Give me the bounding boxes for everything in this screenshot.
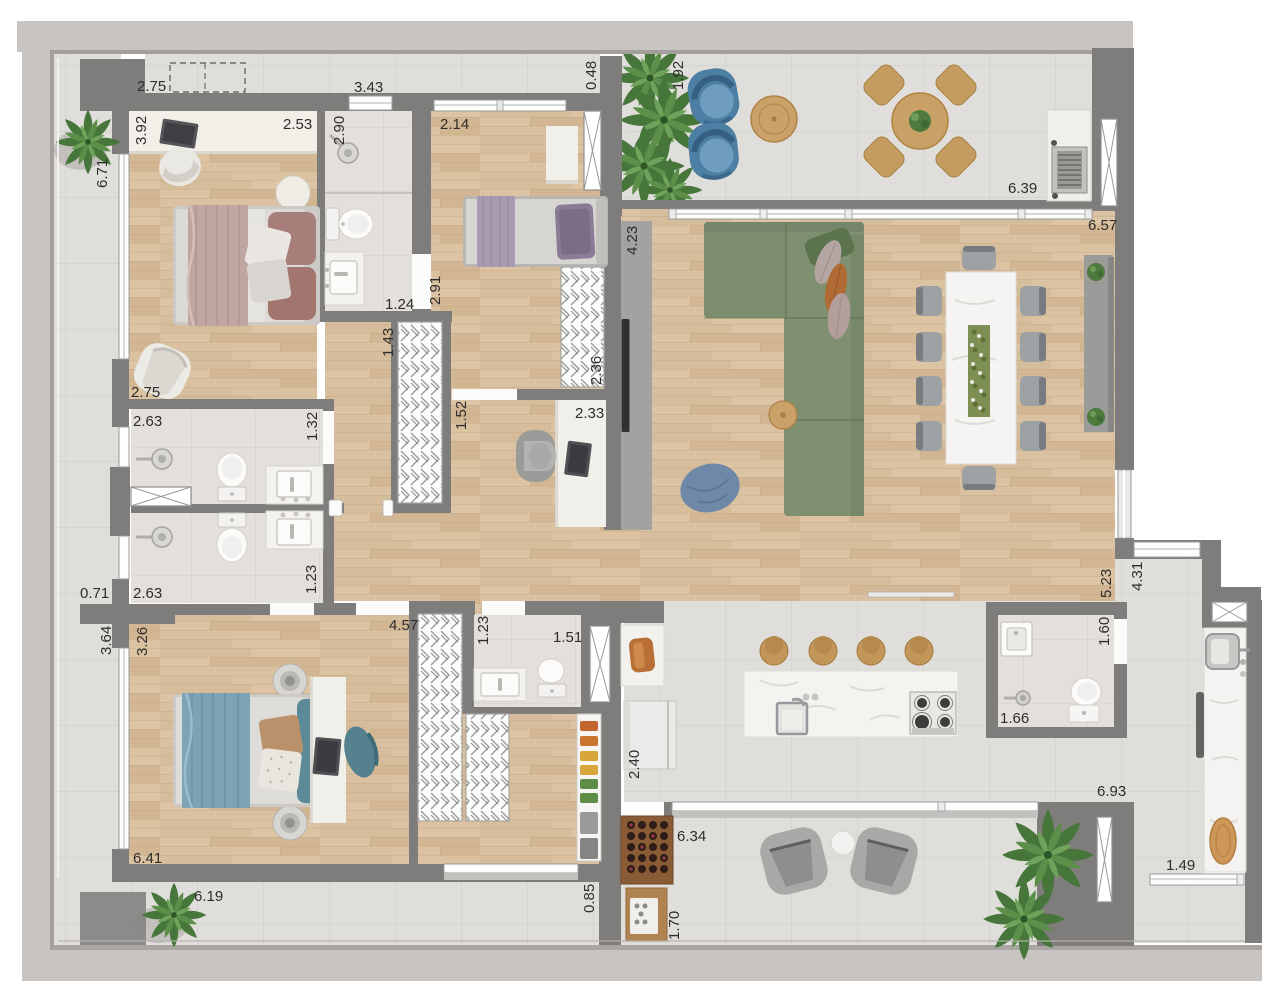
svg-text:6.71: 6.71	[94, 159, 111, 188]
svg-text:3.26: 3.26	[134, 627, 151, 656]
svg-text:2.90: 2.90	[331, 116, 348, 145]
svg-text:2.36: 2.36	[588, 356, 605, 385]
svg-text:2.14: 2.14	[440, 116, 469, 133]
svg-text:1.23: 1.23	[303, 565, 320, 594]
svg-text:1.23: 1.23	[475, 616, 492, 645]
svg-text:2.53: 2.53	[283, 116, 312, 133]
svg-text:2.75: 2.75	[131, 384, 160, 401]
svg-text:4.57: 4.57	[389, 617, 418, 634]
svg-text:1.32: 1.32	[304, 412, 321, 441]
svg-text:4.31: 4.31	[1129, 562, 1146, 591]
svg-text:1.70: 1.70	[666, 911, 683, 940]
svg-text:1.92: 1.92	[670, 61, 687, 90]
svg-text:0.48: 0.48	[583, 61, 600, 90]
svg-text:1.49: 1.49	[1166, 857, 1195, 874]
svg-text:4.23: 4.23	[624, 226, 641, 255]
svg-text:1.43: 1.43	[380, 328, 397, 357]
svg-text:2.40: 2.40	[626, 750, 643, 779]
svg-text:6.34: 6.34	[677, 828, 706, 845]
svg-text:0.85: 0.85	[581, 884, 598, 913]
svg-text:0.71: 0.71	[80, 585, 109, 602]
svg-text:1.66: 1.66	[1000, 710, 1029, 727]
svg-text:3.43: 3.43	[354, 79, 383, 96]
svg-text:1.52: 1.52	[453, 401, 470, 430]
svg-text:3.64: 3.64	[98, 626, 115, 655]
svg-text:1.51: 1.51	[553, 629, 582, 646]
svg-text:3.92: 3.92	[133, 116, 150, 145]
svg-text:2.91: 2.91	[427, 276, 444, 305]
svg-text:2.63: 2.63	[133, 413, 162, 430]
svg-text:6.57: 6.57	[1088, 217, 1117, 234]
svg-text:6.19: 6.19	[194, 888, 223, 905]
svg-text:1.60: 1.60	[1096, 617, 1113, 646]
svg-text:2.75: 2.75	[137, 78, 166, 95]
svg-text:5.23: 5.23	[1098, 569, 1115, 598]
svg-text:1.24: 1.24	[385, 296, 414, 313]
svg-text:6.39: 6.39	[1008, 180, 1037, 197]
svg-text:2.63: 2.63	[133, 585, 162, 602]
svg-text:6.41: 6.41	[133, 850, 162, 867]
svg-text:6.93: 6.93	[1097, 783, 1126, 800]
svg-text:2.33: 2.33	[575, 405, 604, 422]
